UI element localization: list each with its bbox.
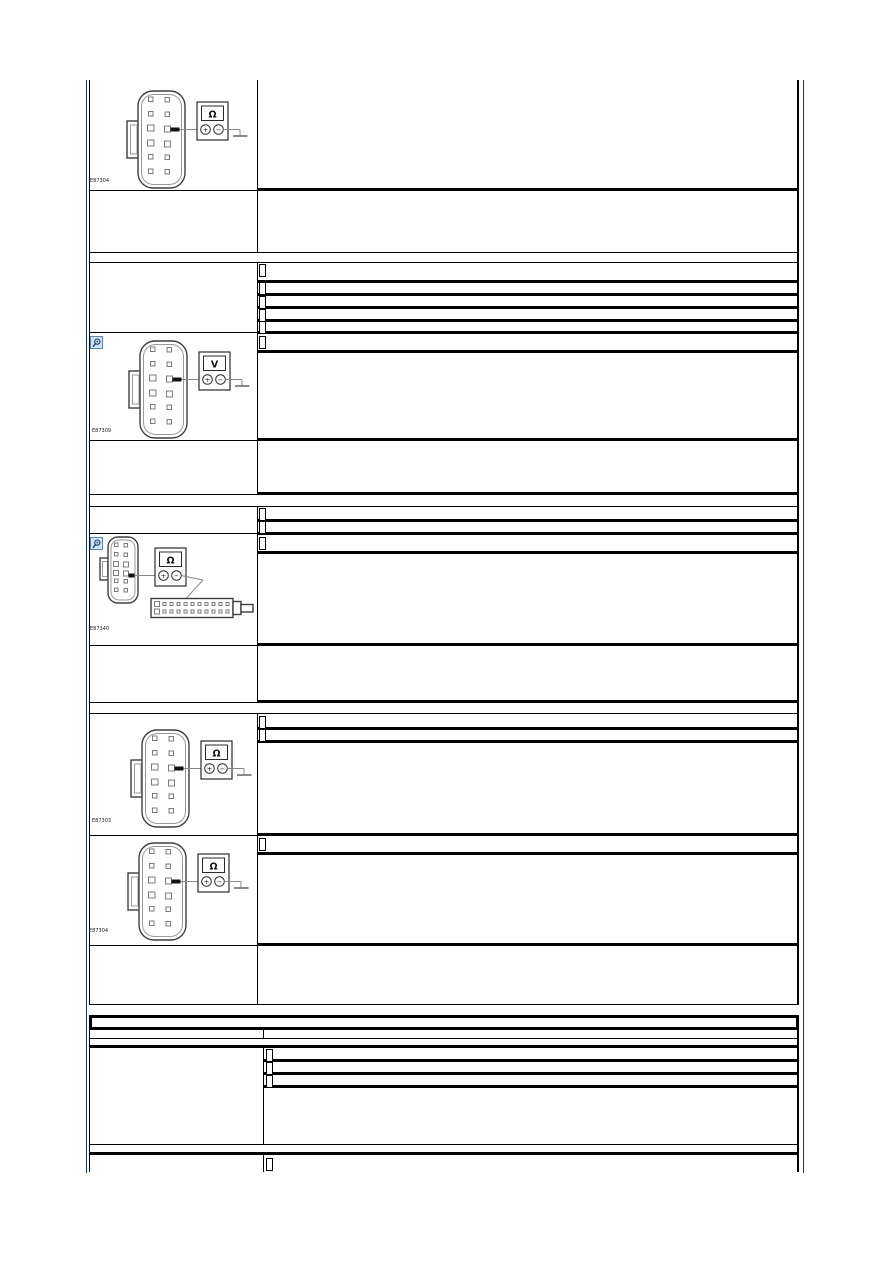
grid-line	[89, 506, 798, 507]
figure-e87303: Ω + −	[91, 727, 266, 842]
test-lead-wire	[186, 580, 203, 599]
grid-line	[257, 852, 798, 855]
meter-plus-terminal: +	[204, 878, 209, 886]
grid-line	[257, 331, 798, 334]
figure-code: E87309	[92, 428, 111, 434]
test-lead-wire	[181, 576, 203, 581]
grid-line	[89, 713, 798, 714]
grid-line	[257, 532, 798, 535]
probe-contact	[129, 574, 135, 578]
placeholder-box	[266, 1049, 273, 1062]
grid-line	[89, 1144, 799, 1145]
page-frame-right	[803, 80, 804, 1173]
figure-e87304-top: Ω + −	[87, 88, 262, 203]
page-frame-left	[86, 80, 87, 1173]
multimeter-icon	[155, 548, 186, 586]
grid-line	[89, 702, 257, 703]
meter-plus-terminal: +	[205, 376, 210, 384]
grid-line	[257, 188, 798, 191]
table2-header-band	[89, 1015, 799, 1030]
grid-line	[797, 1030, 799, 1172]
meter-symbol: Ω	[208, 110, 216, 121]
grid-line	[257, 438, 798, 441]
meter-minus-terminal: −	[174, 572, 179, 580]
grid-line	[89, 252, 798, 253]
figure-e87309: V + −	[89, 338, 264, 453]
meter-minus-terminal: −	[216, 126, 221, 134]
grid-line	[263, 1155, 264, 1172]
meter-minus-terminal: −	[220, 765, 225, 773]
manual-page: Ω + − E87304 V + − E87309	[0, 0, 893, 1263]
placeholder-box	[266, 1062, 273, 1075]
connector-side-tab	[100, 558, 110, 580]
connector-body	[108, 537, 138, 603]
meter-plus-terminal: +	[207, 765, 212, 773]
placeholder-box	[259, 282, 266, 295]
grid-line	[89, 1030, 90, 1172]
placeholder-box	[266, 1075, 273, 1088]
grid-line	[89, 332, 257, 333]
grid-line	[89, 1038, 799, 1039]
placeholder-box	[266, 1158, 273, 1171]
connector-and-pigtail-diagram: Ω + −	[88, 532, 263, 627]
grid-line	[263, 1072, 798, 1075]
grid-line	[257, 280, 798, 283]
figure-code: E87304	[89, 928, 108, 934]
placeholder-box	[259, 296, 266, 309]
placeholder-box	[259, 508, 266, 521]
connector-diagram: V + −	[89, 338, 264, 453]
grid-line	[257, 492, 798, 495]
meter-minus-terminal: −	[218, 376, 223, 384]
grid-line	[257, 700, 798, 703]
figure-code: E87303	[92, 818, 111, 824]
meter-symbol: Ω	[209, 862, 217, 873]
figure-e87304-bottom: Ω + −	[88, 840, 263, 955]
pigtail-connector-drawing	[151, 599, 253, 618]
grid-line	[257, 306, 798, 309]
grid-line	[89, 645, 257, 646]
grid-line	[257, 293, 798, 296]
grid-line	[257, 519, 798, 522]
grid-line	[89, 1004, 799, 1005]
grid-line	[263, 1048, 264, 1144]
placeholder-box	[259, 321, 266, 334]
placeholder-box	[259, 264, 266, 277]
grid-line	[89, 262, 798, 263]
figure-code: E87340	[90, 626, 109, 632]
grid-line	[257, 350, 798, 353]
grid-line	[89, 494, 257, 495]
connector-diagram: Ω + −	[88, 840, 263, 955]
meter-symbol: V	[211, 360, 219, 371]
meter-plus-terminal: +	[203, 126, 208, 134]
grid-line	[257, 643, 798, 646]
grid-line	[89, 1045, 799, 1048]
meter-symbol: Ω	[166, 556, 174, 567]
connector-diagram: Ω + −	[91, 727, 266, 842]
figure-code: E87304	[90, 178, 109, 184]
grid-line	[257, 740, 798, 743]
meter-plus-terminal: +	[161, 572, 166, 580]
connector-diagram: Ω + −	[87, 88, 262, 203]
meter-minus-terminal: −	[217, 878, 222, 886]
grid-line	[257, 943, 798, 946]
grid-line	[89, 1152, 799, 1155]
grid-line	[263, 1059, 798, 1062]
grid-line	[263, 1085, 798, 1088]
grid-line	[257, 319, 798, 322]
grid-line	[257, 833, 798, 836]
grid-line	[257, 727, 798, 730]
grid-line	[257, 551, 798, 554]
figure-e87340: Ω + −	[88, 532, 263, 627]
meter-symbol: Ω	[212, 749, 220, 760]
grid-line	[797, 80, 799, 1005]
